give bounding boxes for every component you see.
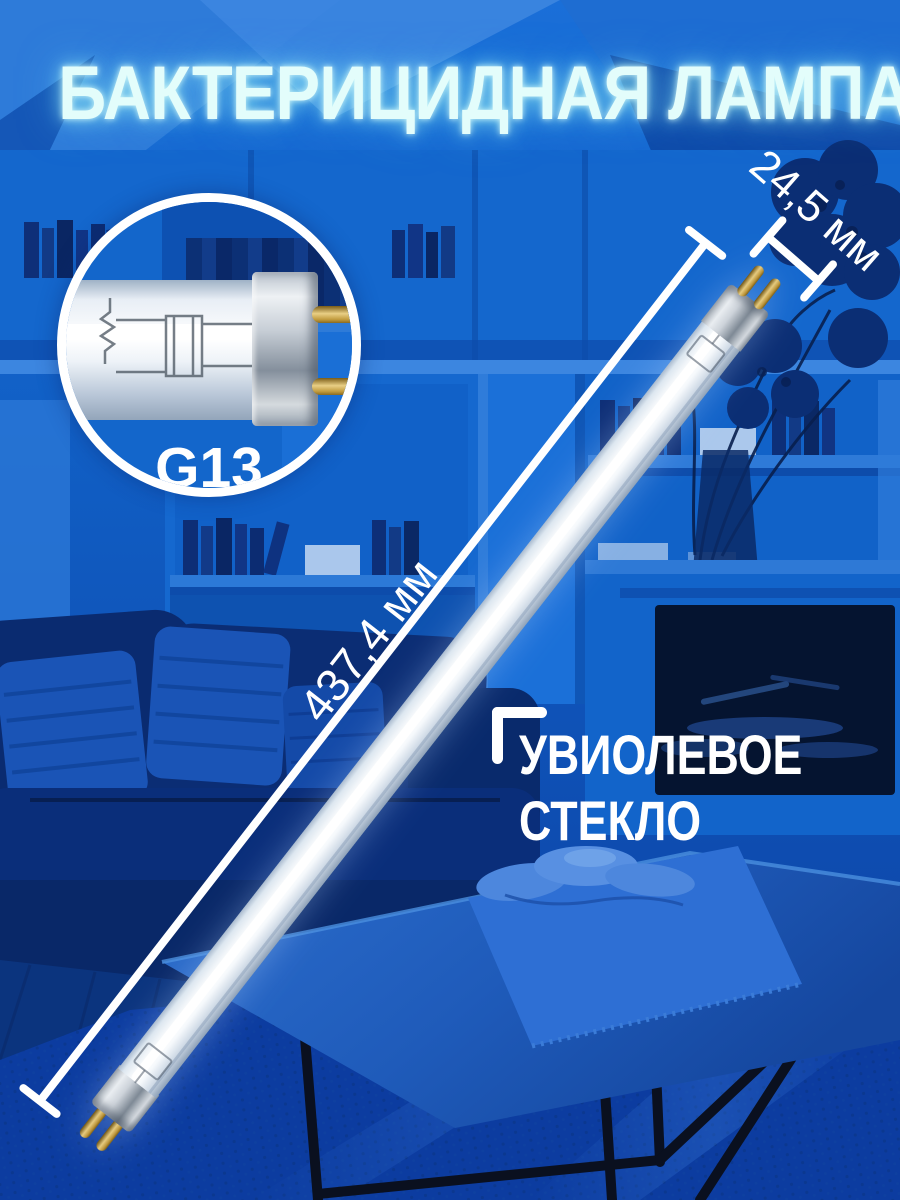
vase — [693, 450, 758, 570]
filament-closeup — [94, 290, 254, 414]
page-title: БАКТЕРИЦИДНАЯ ЛАМПА — [0, 50, 900, 137]
glass-callout-text: УВИОЛЕВОЕ СТЕКЛО — [519, 727, 873, 849]
base-type-label: G13 — [66, 435, 352, 497]
glass-callout-bracket — [492, 707, 547, 718]
product-image-canvas: БАКТЕРИЦИДНАЯ ЛАМПА G13 437,4 мм 24,5 мм — [0, 0, 900, 1200]
sofa-pillow — [0, 649, 149, 811]
sofa-pillow — [145, 625, 291, 786]
base-type-inset: G13 — [57, 193, 361, 497]
glass-callout-line1: УВИОЛЕВОЕ — [519, 727, 802, 783]
product-title-text: БАКТЕРИЦИДНАЯ ЛАМПА — [58, 50, 900, 137]
glass-callout-line2: СТЕКЛО — [519, 793, 802, 849]
lamp-cap-closeup — [252, 272, 318, 426]
lamp-pin-closeup — [312, 306, 361, 323]
